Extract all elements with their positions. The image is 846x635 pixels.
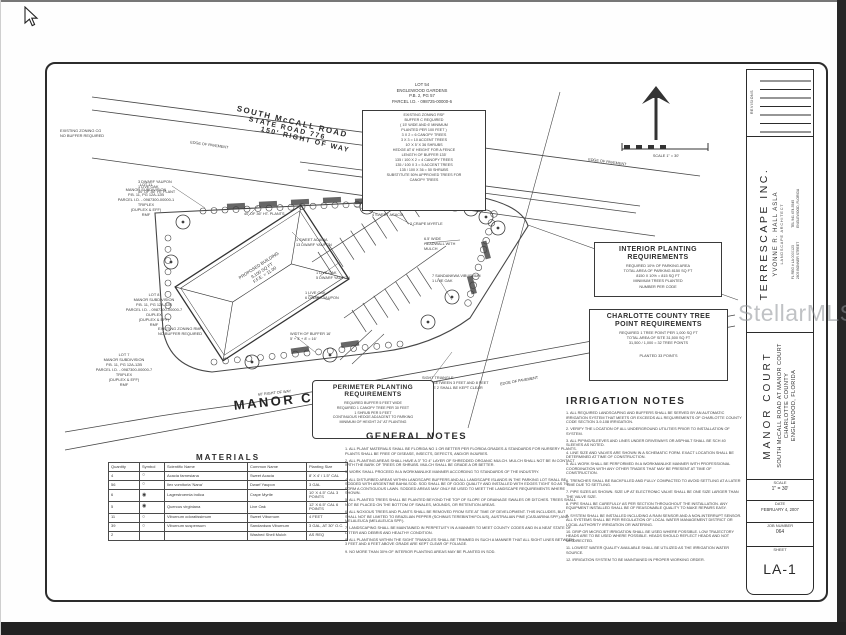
irrigation-note-item: 4. LINE SIZE AND VALVES ARE SHOWN IN A S… <box>566 451 744 460</box>
materials-cell-quantity: 56 <box>109 481 140 490</box>
irrigation-note-item: 6. TRENCHES SHALL BE BACKFILLED AND FULL… <box>566 479 744 488</box>
sheet-box: SHEET LA-1 <box>747 546 813 593</box>
materials-cell-size: 12' X 6.5" CAL 6 POINTS <box>307 501 348 513</box>
firm-name: TERRESCAPE INC. <box>758 168 770 301</box>
materials-cell-symbol: ○ <box>140 513 165 522</box>
general-notes-title: GENERAL NOTES <box>366 431 467 442</box>
materials-cell-common: Washed Shell Mulch <box>248 531 307 540</box>
irrigation-note-item: 9. SYSTEM SHALL BE INSTALLED INCLUDING A… <box>566 514 744 528</box>
materials-header-row: QuantitySymbolScientific NameCommon Name… <box>109 463 348 472</box>
materials-cell-symbol: ◉ <box>140 490 165 502</box>
materials-cell-size: 8' X 4' / 1.5" CAL <box>307 472 348 481</box>
general-note-item: 3. WORK SHALL PROCEED IN A WORKMANLIKE M… <box>345 470 577 475</box>
materials-cell-scientific: Viburnum odoratissimum <box>165 513 248 522</box>
general-note-item: 4. ALL DISTURBED AREAS WITHIN LANDSCAPE … <box>345 478 577 496</box>
general-note-item: 9. NO MORE THAN 30% OF INTERIOR PLANTING… <box>345 550 577 555</box>
general-notes-list: 1. ALL PLANT MATERIALS SHALL BE FLORIDA … <box>345 447 577 557</box>
materials-row: 6 ◉ Lagerstroemia indica Crape Myrtle 10… <box>109 490 348 502</box>
materials-cell-quantity: 39 <box>109 522 140 531</box>
firm-address-right: TEL 941 474-5545 ENGLEWOOD, FLORIDA <box>791 189 801 228</box>
irrigation-note-item: 7. PIPE SIZES AS SHOWN. SIZE UP AT ELECT… <box>566 490 744 499</box>
tree-point-footer: PLANTED 33 POINTS <box>590 354 727 359</box>
project-name: MANOR COURT <box>762 351 773 459</box>
plant-callout: 7 SANDANKWA VIBURNUM 1 LIVE OAK <box>432 274 481 284</box>
general-note-item: 2. ALL PLANTING AREAS SHALL HAVE A 3" TO… <box>345 459 577 468</box>
plant-callout: 2 CRAPE MYRTLE <box>410 222 443 227</box>
materials-table: QuantitySymbolScientific NameCommon Name… <box>108 462 348 541</box>
materials-cell-common: Sweet Acacia <box>248 472 307 481</box>
materials-cell-size: 3 GAL <box>307 481 348 490</box>
scale-caption: SCALE 1" = 30' <box>618 154 714 159</box>
scale-value: 1" = 30' <box>747 486 813 492</box>
materials-cell-scientific: Lagerstroemia indica <box>165 490 248 502</box>
plant-callout: 6.5' WIDE HEADWALL WITH MULCH <box>424 237 455 252</box>
project-line1: SOUTH McCALL ROAD AT MANOR COURT <box>777 343 783 467</box>
materials-row: 11 ○ Viburnum odoratissimum Sweet Viburn… <box>109 513 348 522</box>
lot8-block: LOT 8 MANOR SUBDIVISION P.B. 11, PG 12A-… <box>118 292 190 328</box>
sheet-number: LA-1 <box>747 561 813 577</box>
irrigation-note-item: 2. VERIFY THE LOCATION OF ALL UNDERGROUN… <box>566 427 744 436</box>
plant-callout: 1 LIVE OAK 5 DWARF YAUPON <box>316 271 350 281</box>
zoning-lot8: EXISTING ZONING RMF NO BUFFER REQUIRED <box>158 326 222 336</box>
revisions-label: REVISIONS <box>750 70 761 134</box>
revisions-block: REVISIONS <box>747 70 813 136</box>
interior-planting-box: INTERIOR PLANTING REQUIREMENTS REQUIRED … <box>594 242 722 297</box>
date-box: DATE FEBRUARY 4, 2007 <box>747 500 813 523</box>
materials-cell-scientific: Quercus virginiana <box>165 501 248 513</box>
screenshot-root: { "watermark": "StellarMLS", "north": { … <box>0 0 846 635</box>
lot11-block: LOT 11 MANOR SUBDIVISION P.B. 11, PG 12A… <box>110 182 182 218</box>
materials-row: 4 ○ Acacia farnesiana Sweet Acacia 8' X … <box>109 472 348 481</box>
materials-cell-size: 3 GAL, AT 30" O.C. <box>307 522 348 531</box>
materials-cell-symbol: ○ <box>140 481 165 490</box>
tree-point-box: CHARLOTTE COUNTY TREE POINT REQUIREMENTS… <box>589 309 728 381</box>
general-note-item: 6. ALL NOXIOUS TREES AND PLANTS SHALL BE… <box>345 510 577 524</box>
materials-cell-common: Dwarf Yaupon <box>248 481 307 490</box>
materials-cell-common: Sweet Viburnum <box>248 513 307 522</box>
materials-header-cell: Symbol <box>140 463 165 472</box>
materials-cell-common: Crape Myrtle <box>248 490 307 502</box>
irrigation-note-item: 3. ALL PIPING/SLEEVES AND LINES UNDER DR… <box>566 439 744 448</box>
buffer-box-line: CANOPY TREES <box>363 178 485 183</box>
general-note-item: 8. ALL PLANTINGS WITHIN THE SIGHT TRIANG… <box>345 538 577 547</box>
materials-row: 39 ○ Viburnum suspensum Sandankwa Viburn… <box>109 522 348 531</box>
project-line2: CHARLOTTE COUNTY <box>784 373 790 438</box>
project-line3: ENGLEWOOD, FLORIDA <box>791 370 797 442</box>
job-value: 064 <box>747 529 813 535</box>
materials-cell-common: Sandankwa Viburnum <box>248 522 307 531</box>
firm-principal: YVONNE R. HALL ASLA <box>773 191 779 276</box>
materials-cell-quantity: 5 <box>109 501 140 513</box>
materials-cell-quantity: 4 <box>109 472 140 481</box>
materials-cell-symbol: ◉ <box>140 501 165 513</box>
plant-callout: 1 SWEET ACACIA 13 DWARF YAUPON <box>296 238 332 248</box>
firm-block: TERRESCAPE INC. YVONNE R. HALL ASLA LAND… <box>747 136 813 333</box>
firm-address-left: FL REG # LA 0000123 2805 BONNER STREET <box>791 242 801 279</box>
plant-callout: 1 LIVE OAK 6 DWARF YAUPON <box>305 291 339 301</box>
materials-header-cell: Planting Size <box>307 463 348 472</box>
date-value: FEBRUARY 4, 2007 <box>747 507 813 512</box>
materials-cell-symbol: ○ <box>140 522 165 531</box>
irrigation-note-item: 10. DRIP OR MICROJET IRRIGATION SHALL BE… <box>566 530 744 544</box>
lot54-buffer-box: EXISTING ZONING RSFBUFFER C REQUIRED( 15… <box>362 110 486 211</box>
materials-header-cell: Common Name <box>248 463 307 472</box>
tree-point-title: CHARLOTTE COUNTY TREE POINT REQUIREMENTS <box>590 313 727 329</box>
lot7-block: LOT 7 MANOR SUBDIVISION P.B. 11, PG 12A-… <box>88 352 160 388</box>
materials-cell-size: 4 FEET <box>307 513 348 522</box>
sheet-label: SHEET <box>747 548 813 553</box>
buffer-width-note: WIDTH OF BUFFER 16' 5' + 3' + 8' = 16' <box>290 332 331 342</box>
tree-point-line: 31,500 / 1,000 = 32 TREE POINTS <box>590 341 727 346</box>
firm-role: LANDSCAPE ARCHITECT <box>780 204 784 265</box>
materials-cell-symbol <box>140 531 165 540</box>
materials-header-cell: Quantity <box>109 463 140 472</box>
irrigation-note-item: 11. LOWEST WATER QUALITY AVAILABLE SHALL… <box>566 546 744 555</box>
irrigation-notes-list: 1. ALL REQUIRED LANDSCAPING AND BUFFERS … <box>566 411 744 565</box>
interior-planting-title: INTERIOR PLANTING REQUIREMENTS <box>595 246 721 262</box>
materials-cell-symbol: ○ <box>140 472 165 481</box>
perimeter-planting-title: PERIMETER PLANTING REQUIREMENTS <box>313 384 433 399</box>
zoning-top-left: EXISTING ZONING CG NO BUFFER REQUIRED <box>60 128 124 138</box>
materials-cell-quantity: 11 <box>109 513 140 522</box>
project-block: MANOR COURT SOUTH McCALL ROAD AT MANOR C… <box>747 332 813 480</box>
general-note-item: 1. ALL PLANT MATERIALS SHALL BE FLORIDA … <box>345 447 577 456</box>
general-note-item: 7. LANDSCAPING SHALL BE MAINTAINED IN PE… <box>345 526 577 535</box>
materials-cell-size: AS REQ <box>307 531 348 540</box>
irrigation-note-item: 12. IRRIGATION SYSTEM TO BE MAINTAINED I… <box>566 558 744 563</box>
scale-box: SCALE 1" = 30' <box>747 479 813 501</box>
perimeter-planting-line: MINIMUM OF HEIGHT 24" AT PLANTING <box>313 420 433 425</box>
materials-cell-size: 10' X 4.5" CAL 3 POINTS <box>307 490 348 502</box>
revisions-lines <box>760 73 811 133</box>
materials-title: MATERIALS <box>108 453 348 462</box>
irrigation-note-item: 8. PIPE SHALL BE CAREFULLY AS PER SECTIO… <box>566 502 744 511</box>
irrigation-note-item: 5. ALL WORK SHALL BE PERFORMED IN A WORK… <box>566 462 744 476</box>
materials-cell-scientific: Acacia farnesiana <box>165 472 248 481</box>
materials-cell-quantity: 6 <box>109 490 140 502</box>
job-box: JOB NUMBER 064 <box>747 522 813 547</box>
irrigation-notes-title: IRRIGATION NOTES <box>566 396 685 407</box>
graphic-scale-bar <box>620 141 712 153</box>
interior-planting-line: NUMBER PER CODE <box>595 285 721 290</box>
materials-row: 5 ◉ Quercus virginiana Live Oak 12' X 6.… <box>109 501 348 513</box>
materials-cell-scientific: Viburnum suspensum <box>165 522 248 531</box>
materials-row: 56 ○ Ilex vomitoria 'Nana' Dwarf Yaupon … <box>109 481 348 490</box>
north-arrow-icon <box>636 84 676 144</box>
irrigation-note-item: 1. ALL REQUIRED LANDSCAPING AND BUFFERS … <box>566 411 744 425</box>
lot54-header: LOT 54 ENGLEWOOD GARDENS P.B. 2, PG 57 P… <box>352 82 492 104</box>
plant-callout: 40' OF 36" HT. PLANTS <box>244 212 284 217</box>
materials-cell-scientific <box>165 531 248 540</box>
materials-cell-quantity: 2 <box>109 531 140 540</box>
materials-cell-common: Live Oak <box>248 501 307 513</box>
title-block: REVISIONS TERRESCAPE INC. YVONNE R. HALL… <box>746 69 814 595</box>
materials-cell-scientific: Ilex vomitoria 'Nana' <box>165 481 248 490</box>
general-note-item: 5. ALL PLANTED TREES SHALL BE PLANTED BE… <box>345 498 577 507</box>
materials-row: 2 Washed Shell Mulch AS REQ <box>109 531 348 540</box>
materials-header-cell: Scientific Name <box>165 463 248 472</box>
